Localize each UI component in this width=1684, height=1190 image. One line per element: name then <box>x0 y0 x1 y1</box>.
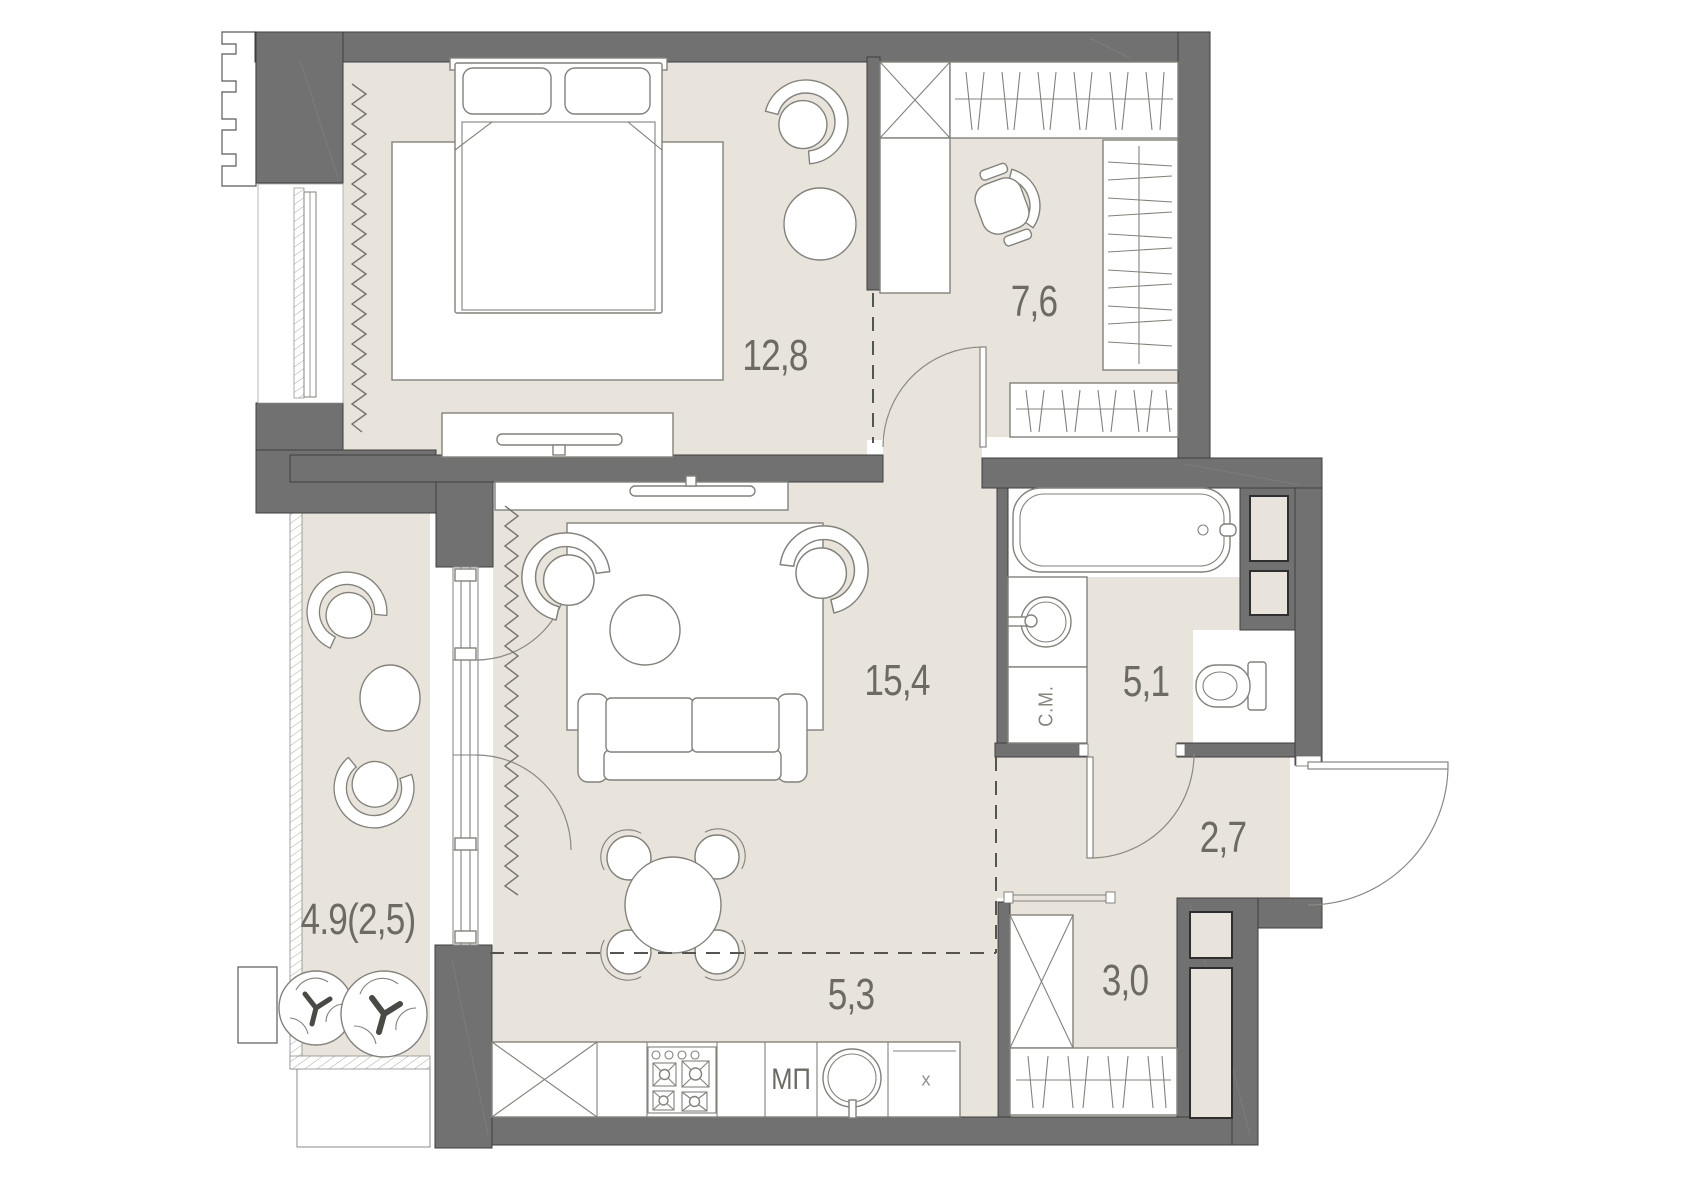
kitchen-counter <box>492 1042 960 1118</box>
bedroom-tv-console <box>442 413 673 457</box>
pouf <box>784 188 856 260</box>
balcony-slab <box>297 1067 430 1147</box>
room-label-kitchen: 5,3 <box>828 970 875 1020</box>
bed <box>450 58 667 313</box>
room-label-bathroom: 5,1 <box>1123 657 1170 707</box>
tv <box>630 486 755 496</box>
entry-closet <box>1010 1048 1177 1115</box>
pillow <box>565 68 650 114</box>
entry-door <box>1296 756 1448 905</box>
closet-top <box>950 62 1178 138</box>
room-label-hallway: 2,7 <box>1200 813 1247 863</box>
wardrobe <box>880 62 950 138</box>
pillow <box>463 68 551 114</box>
balcony-table <box>360 665 420 731</box>
desk <box>880 138 950 293</box>
plant <box>341 971 427 1057</box>
room-label-living: 15,4 <box>864 656 929 706</box>
dining-table <box>625 857 721 953</box>
exterior-box <box>238 967 277 1043</box>
tv <box>497 434 622 445</box>
cabinet-label: х <box>922 1070 931 1091</box>
washing-machine-label: С.М. <box>1036 685 1059 727</box>
closet-right <box>1103 140 1178 370</box>
coffee-table <box>610 595 680 665</box>
floor-plan-page: 12,8 7,6 15,4 5,1 2,7 3,0 5,3 4.9(2,5) М… <box>0 0 1684 1190</box>
room-label-entry: 3,0 <box>1102 956 1149 1006</box>
entry-wardrobe <box>1010 915 1073 1048</box>
room-label-bedroom: 12,8 <box>742 331 807 381</box>
room-label-balcony: 4.9(2,5) <box>301 895 416 945</box>
dishwasher-label: МП <box>771 1063 811 1097</box>
toilet <box>1196 662 1266 710</box>
closet-bottom <box>1010 383 1178 437</box>
bedroom-window <box>258 184 343 403</box>
bathroom-sink <box>1008 577 1087 667</box>
bathtub <box>1013 488 1236 572</box>
sofa <box>578 694 807 782</box>
room-label-dressing: 7,6 <box>1011 277 1058 327</box>
